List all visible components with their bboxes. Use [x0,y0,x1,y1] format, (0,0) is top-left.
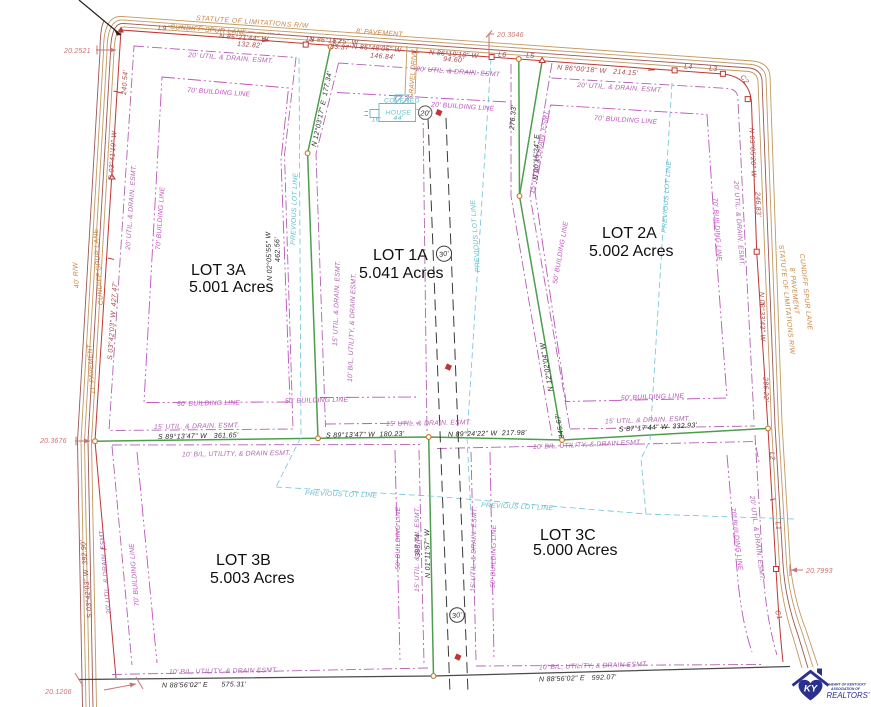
svg-text:15' UTIL. & DRAIN. ESMT.: 15' UTIL. & DRAIN. ESMT. [470,506,478,592]
svg-text:50' BUILDING LINE: 50' BUILDING LINE [490,524,498,588]
svg-text:20.3046: 20.3046 [496,32,524,39]
svg-text:5.001 Acres: 5.001 Acres [189,279,274,296]
svg-text:L2: L2 [768,452,775,461]
svg-text:20.2521: 20.2521 [63,48,91,55]
svg-text:LOT 1A: LOT 1A [373,247,428,264]
svg-text:L4: L4 [684,64,693,72]
svg-text:N 88'56'02" E 575.31': N 88'56'02" E 575.31' [162,681,247,689]
svg-text:50' BUILDING LINE: 50' BUILDING LINE [177,400,241,408]
svg-text:20.3676: 20.3676 [39,438,67,445]
svg-text:246.83': 246.83' [753,191,761,217]
svg-text:50' BUILDING LINE: 50' BUILDING LINE [285,397,349,405]
svg-text:462.56': 462.56' [274,237,282,262]
svg-text:KY: KY [804,684,819,695]
svg-text:L9: L9 [158,25,167,33]
svg-text:L7: L7 [333,39,343,47]
svg-text:20.1206: 20.1206 [44,689,72,696]
svg-text:LOT 3A: LOT 3A [191,262,246,279]
svg-text:N 03°33'43" W: N 03°33'43" W [758,292,767,343]
svg-text:REALTORS’: REALTORS’ [827,691,870,700]
svg-text:20': 20' [419,109,430,118]
svg-text:L5: L5 [526,53,535,61]
svg-text:LOT 3B: LOT 3B [216,552,271,569]
svg-text:N 01°11'57" W: N 01°11'57" W [423,528,432,578]
svg-text:50' BUILDING LINE: 50' BUILDING LINE [395,506,402,570]
svg-text:16': 16' [372,116,382,123]
svg-text:30': 30' [439,250,450,258]
svg-text:5.003 Acres: 5.003 Acres [210,570,295,587]
svg-text:L6: L6 [498,52,507,60]
svg-text:5.041 Acres: 5.041 Acres [359,265,444,282]
svg-text:L8: L8 [306,37,315,45]
svg-text:S 89°13'47" W 180.23': S 89°13'47" W 180.23' [326,430,405,440]
svg-text:15' UTIL. & DRAIN. ESMT.: 15' UTIL. & DRAIN. ESMT. [414,506,421,592]
svg-text:44': 44' [394,115,404,122]
svg-text:30': 30' [452,612,463,620]
svg-text:L1: L1 [774,521,782,530]
svg-text:286.22': 286.22' [761,376,769,402]
svg-text:L3: L3 [709,66,718,74]
svg-text:20.7993: 20.7993 [805,568,833,575]
svg-text:LOT 2A: LOT 2A [602,225,657,242]
svg-text:5.002 Acres: 5.002 Acres [589,243,674,260]
svg-text:5.000 Acres: 5.000 Acres [533,542,618,559]
